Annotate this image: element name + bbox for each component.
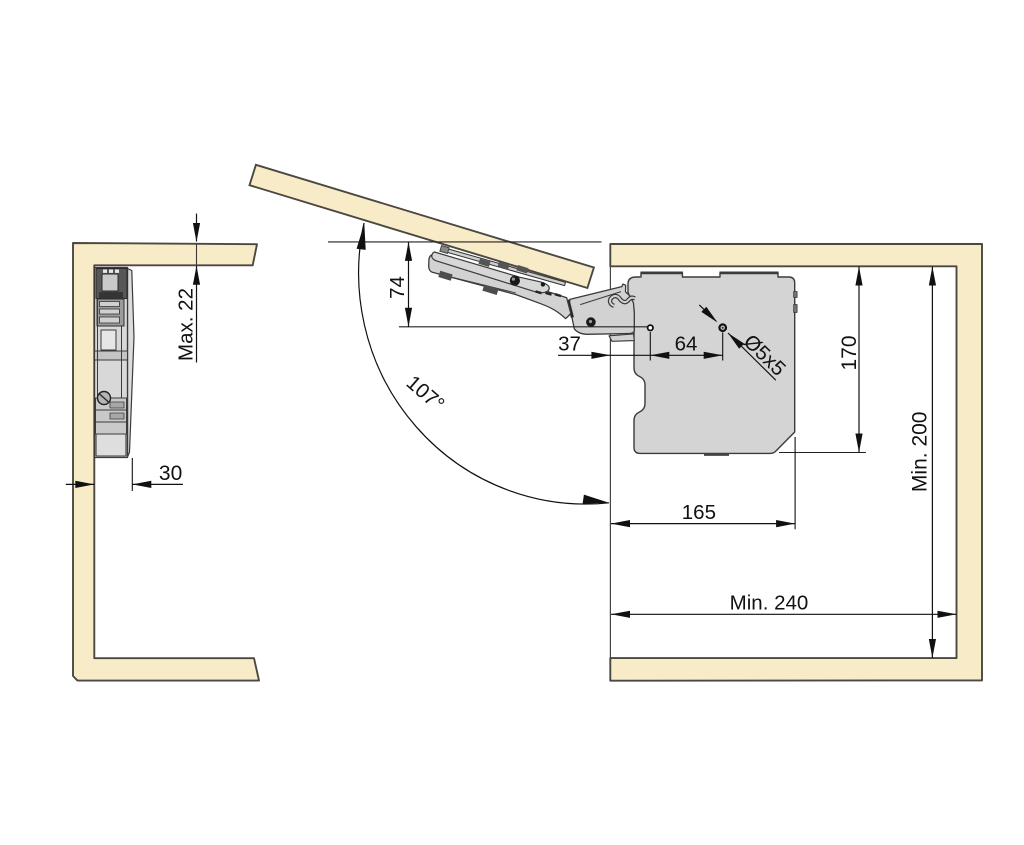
svg-text:165: 165 <box>682 501 716 524</box>
svg-text:64: 64 <box>675 333 698 356</box>
svg-text:Min. 240: Min. 240 <box>730 592 809 615</box>
svg-text:37: 37 <box>558 333 581 356</box>
svg-text:74: 74 <box>386 276 409 299</box>
svg-text:30: 30 <box>159 462 182 485</box>
svg-text:Max. 22: Max. 22 <box>174 288 197 361</box>
svg-text:107°: 107° <box>402 371 449 416</box>
svg-text:170: 170 <box>838 335 861 370</box>
svg-text:Min. 200: Min. 200 <box>909 412 932 493</box>
